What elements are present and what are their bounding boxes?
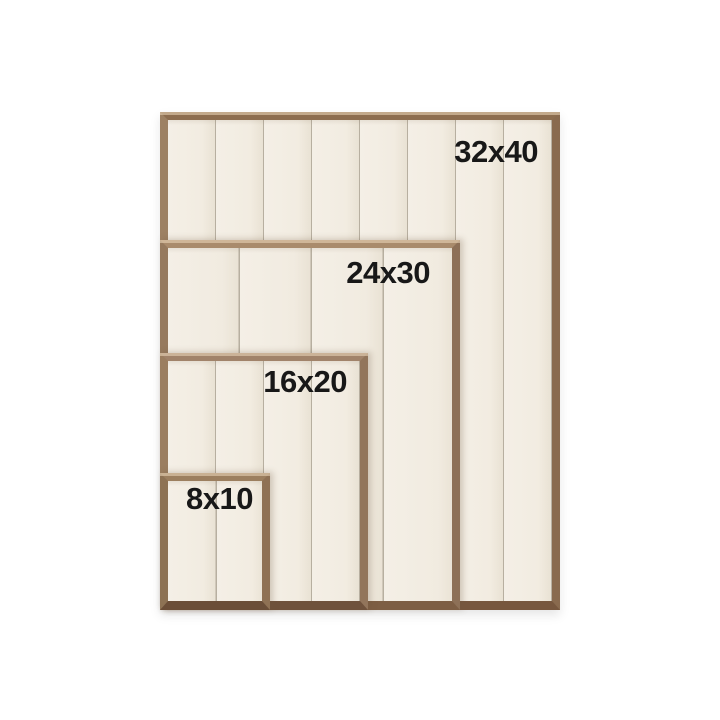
size-label-16x20: 16x20 [263, 366, 347, 397]
size-label-24x30: 24x30 [346, 257, 430, 288]
size-comparison-photo: 32x40 24x30 16x20 8x10 [0, 0, 720, 720]
frame-8x10: 8x10 [160, 473, 270, 610]
size-label-8x10: 8x10 [186, 483, 253, 514]
size-label-32x40: 32x40 [454, 136, 538, 167]
